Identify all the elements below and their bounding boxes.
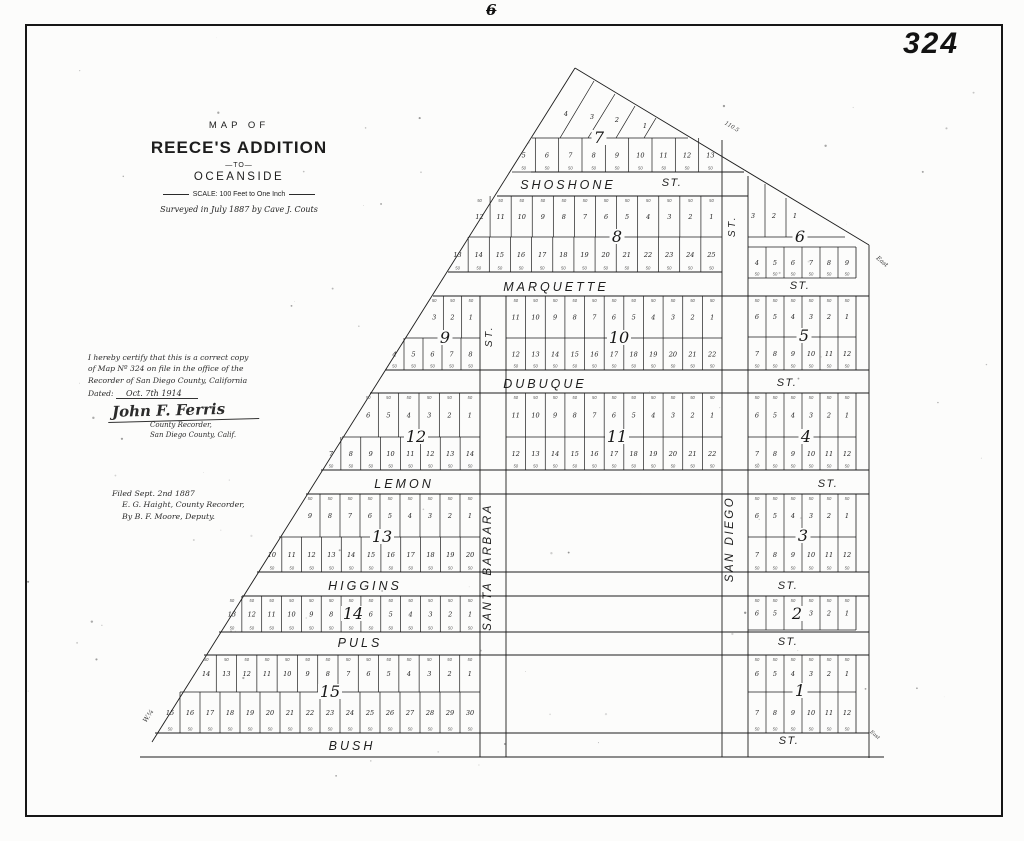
lot-number: 8	[329, 611, 333, 619]
lot-number: 8	[827, 259, 831, 267]
lot-number: 3	[751, 212, 755, 220]
lot-number: 19	[246, 709, 254, 717]
lot-number: 11	[267, 611, 275, 619]
lot-dimension: 50	[755, 298, 760, 303]
paper-speck	[981, 458, 982, 459]
scale-note: SCALE: 100 Feet to One Inch	[138, 191, 340, 198]
lot-dimension: 50	[624, 266, 629, 271]
lot-number: 4	[407, 512, 412, 520]
paper-speck	[193, 539, 195, 541]
paper-speck	[504, 743, 506, 745]
lot-number: 11	[825, 350, 833, 358]
lot-number: 8	[573, 412, 577, 420]
lot-dimension: 50	[809, 464, 814, 469]
lot-number: 5	[522, 152, 526, 160]
lot-number: 14	[347, 551, 355, 559]
street-label-st: ST.	[779, 735, 800, 747]
lot-number: 7	[568, 152, 573, 160]
lot-number: 16	[590, 351, 598, 359]
lot-number: 1	[845, 610, 849, 618]
lot-dimension: 50	[791, 464, 796, 469]
lot-dimension: 50	[631, 364, 636, 369]
lot-number: 18	[226, 709, 234, 717]
lot-dimension: 50	[809, 566, 814, 571]
paper-speck	[853, 107, 854, 108]
lot-number: 21	[687, 450, 696, 458]
lot-dimension: 50	[289, 598, 294, 603]
lot-number: 18	[629, 351, 637, 359]
lot-number: 4	[790, 512, 795, 520]
paper-speck	[525, 671, 526, 672]
lot-number: 10	[807, 551, 815, 559]
lot-dimension: 50	[603, 266, 608, 271]
lot-number: 13	[222, 670, 230, 678]
paper-speck	[479, 650, 481, 652]
lot-dimension: 50	[553, 364, 558, 369]
lot-dimension: 50	[308, 496, 313, 501]
block-number-7: 7	[594, 128, 605, 147]
lot-number: 13	[453, 251, 461, 259]
lot-number: 10	[807, 709, 815, 717]
lot-number: 7	[449, 351, 454, 359]
street-label-st: ST.	[778, 580, 799, 592]
street-label-st-: ST.	[484, 325, 495, 347]
lot-number: 12	[426, 450, 434, 458]
lot-number: 10	[518, 213, 526, 221]
lot-number: 8	[349, 450, 353, 458]
lot-dimension: 50	[498, 266, 503, 271]
lot-number: 5	[388, 512, 392, 520]
paper-speck	[640, 493, 641, 494]
lot-dimension: 50	[366, 657, 371, 662]
lot-number: 9	[553, 314, 557, 322]
paper-speck	[672, 355, 673, 356]
lot-number: 1	[710, 412, 714, 420]
paper-speck	[358, 326, 359, 327]
lot-dimension: 50	[326, 657, 331, 662]
lot-number: 2	[447, 512, 452, 520]
lot-dimension: 50	[572, 464, 577, 469]
block-number-14: 14	[343, 604, 363, 623]
paper-speck	[79, 383, 80, 384]
lot-number: 7	[592, 314, 597, 322]
lot-dimension: 50	[791, 598, 796, 603]
lot-dimension: 50	[773, 395, 778, 400]
lot-number: 13	[531, 450, 539, 458]
lot-number: 9	[306, 670, 310, 678]
lot-dimension: 50	[208, 727, 213, 732]
lot-number: 22	[305, 709, 314, 717]
lot-number: 21	[285, 709, 294, 717]
lot-dimension: 50	[305, 657, 310, 662]
lot-number: 1	[469, 314, 473, 322]
paper-speck	[797, 650, 798, 651]
lot-number: 6	[604, 213, 608, 221]
paper-speck	[381, 590, 383, 592]
lot-number: 1	[709, 213, 713, 221]
paper-speck	[220, 530, 221, 531]
lot-dimension: 50	[709, 198, 714, 203]
paper-speck	[798, 378, 800, 380]
lot-dimension: 50	[349, 566, 354, 571]
lot-number: 3	[590, 113, 594, 121]
annotation: W.¼	[141, 708, 155, 724]
street-label-shoshone: SHOSHONE	[520, 178, 616, 192]
lot-dimension: 50	[690, 298, 695, 303]
lot-number: 12	[843, 709, 851, 717]
lot-dimension: 50	[553, 298, 558, 303]
lot-dimension: 50	[468, 496, 473, 501]
paper-speck	[235, 631, 236, 632]
lot-dimension: 50	[513, 464, 518, 469]
lot-dimension: 50	[513, 395, 518, 400]
lot-number: 8	[773, 709, 777, 717]
lot-number: 3	[809, 670, 813, 678]
lot-dimension: 50	[468, 626, 473, 631]
lot-dimension: 50	[827, 272, 832, 277]
lot-number: 14	[551, 351, 559, 359]
plat-map-sheet: 5678910111213505050505050505050432171211…	[0, 0, 1024, 841]
lot-dimension: 50	[827, 298, 832, 303]
lot-dimension: 50	[671, 298, 676, 303]
lot-dimension: 50	[568, 166, 573, 171]
lot-number: 24	[685, 251, 694, 259]
paper-speck	[423, 508, 425, 510]
lot-number: 10	[386, 450, 394, 458]
lot-dimension: 50	[230, 626, 235, 631]
lot-number: 26	[385, 709, 394, 717]
lot-dimension: 50	[809, 657, 814, 662]
filed-line: Filed Sept. 2nd 1887	[112, 488, 245, 499]
lot-dimension: 50	[845, 566, 850, 571]
lot-dimension: 50	[408, 496, 413, 501]
lot-dimension: 50	[449, 364, 454, 369]
lot-dimension: 50	[651, 464, 656, 469]
paper-speck	[649, 391, 650, 392]
lot-number: 10	[268, 551, 276, 559]
lot-number: 6	[366, 412, 370, 420]
lot-dimension: 50	[230, 598, 235, 603]
lot-number: 23	[664, 251, 673, 259]
lot-dimension: 50	[773, 657, 778, 662]
lot-dimension: 50	[773, 364, 778, 369]
lot-number: 6	[755, 610, 759, 618]
lot-dimension: 50	[809, 727, 814, 732]
block-number-4: 4	[800, 427, 811, 446]
lot-dimension: 50	[428, 496, 433, 501]
lot-dimension: 50	[690, 364, 695, 369]
lot-number: 1	[845, 313, 849, 321]
lot-number: 11	[512, 412, 520, 420]
lot-dimension: 50	[791, 272, 796, 277]
lot-dimension: 50	[592, 395, 597, 400]
street-label-st: ST.	[818, 478, 839, 490]
lot-dimension: 50	[773, 566, 778, 571]
lot-dimension: 50	[329, 598, 334, 603]
paper-speck	[230, 630, 231, 631]
lot-number: 25	[706, 251, 715, 259]
lot-number: 19	[649, 450, 657, 458]
paper-speck	[549, 714, 551, 716]
lot-dimension: 50	[428, 626, 433, 631]
block-number-3: 3	[798, 526, 808, 545]
lot-dimension: 50	[755, 566, 760, 571]
lot-dimension: 50	[773, 496, 778, 501]
lot-dimension: 50	[204, 657, 209, 662]
lot-dimension: 50	[688, 266, 693, 271]
certification-line: of Map Nº 324 on file in the office of t…	[88, 363, 338, 374]
lot-number: 6	[791, 259, 795, 267]
lot-number: 7	[583, 213, 588, 221]
to-label: —TO—	[138, 162, 340, 169]
lot-number: 8	[328, 512, 332, 520]
lot-dimension: 50	[612, 464, 617, 469]
lot-number: 19	[446, 551, 454, 559]
lot-number: 11	[288, 551, 296, 559]
lot-dimension: 50	[329, 626, 334, 631]
street-label-marquette: MARQUETTE	[503, 280, 608, 294]
lot-number: 2	[447, 611, 452, 619]
lot-dimension: 50	[329, 464, 334, 469]
paper-speck	[203, 472, 204, 473]
lot-number: 1	[643, 122, 647, 130]
lot-dimension: 50	[513, 298, 518, 303]
lot-dimension: 50	[467, 395, 472, 400]
lot-dimension: 50	[710, 364, 715, 369]
paper-speck	[478, 765, 479, 766]
lot-number: 4	[563, 110, 568, 118]
lot-number: 5	[773, 610, 777, 618]
lot-number: 22	[643, 251, 652, 259]
lot-dimension: 50	[755, 727, 760, 732]
lot-dimension: 50	[545, 166, 550, 171]
lot-dimension: 50	[685, 166, 690, 171]
map-title: REECE'S ADDITION	[138, 138, 340, 158]
paper-speck	[217, 112, 219, 114]
lot-number: 1	[845, 670, 849, 678]
paper-speck	[306, 618, 307, 619]
lot-dimension: 50	[309, 566, 314, 571]
lot-number: 10	[807, 350, 815, 358]
lot-number: 1	[710, 314, 714, 322]
lot-number: 15	[571, 450, 579, 458]
lot-number: 12	[843, 551, 851, 559]
lot-dimension: 50	[519, 198, 524, 203]
lot-dimension: 50	[791, 727, 796, 732]
dated-value: Oct. 7th 1914	[116, 389, 198, 399]
lot-dimension: 50	[845, 298, 850, 303]
lot-dimension: 50	[827, 496, 832, 501]
signature-title: County Recorder,	[150, 421, 338, 430]
lot-number: 4	[650, 412, 655, 420]
lot-number: 10	[531, 314, 539, 322]
lot-dimension: 50	[755, 657, 760, 662]
lot-number: 3	[428, 611, 432, 619]
lot-number: 5	[632, 314, 636, 322]
lot-number: 5	[773, 313, 777, 321]
lot-number: 6	[369, 611, 373, 619]
lot-dimension: 50	[448, 496, 453, 501]
lot-dimension: 50	[476, 266, 481, 271]
lot-dimension: 50	[845, 496, 850, 501]
lot-number: 9	[791, 450, 795, 458]
lot-number: 3	[432, 314, 436, 322]
lot-number: 7	[348, 512, 353, 520]
lot-number: 12	[243, 670, 251, 678]
paper-speck	[759, 519, 760, 520]
lot-dimension: 50	[533, 298, 538, 303]
lot-dimension: 50	[773, 298, 778, 303]
paper-speck	[419, 117, 421, 119]
lot-number: 5	[632, 412, 636, 420]
street-label-st: ST.	[777, 377, 798, 389]
lot-number: 3	[809, 610, 813, 618]
recorder-signature: John F. Ferris	[108, 399, 260, 423]
lot-number: 8	[773, 450, 777, 458]
lot-number: 12	[843, 450, 851, 458]
lot-number: 6	[612, 412, 616, 420]
lot-dimension: 50	[268, 727, 273, 732]
lot-number: 4	[645, 213, 650, 221]
lot-dimension: 50	[667, 266, 672, 271]
lot-dimension: 50	[533, 364, 538, 369]
lot-dimension: 50	[809, 298, 814, 303]
lot-dimension: 50	[671, 464, 676, 469]
lot-number: 21	[687, 351, 696, 359]
lot-dimension: 50	[224, 657, 229, 662]
scale-rule-right	[289, 194, 315, 195]
surveyor-note: Surveyed in July 1887 by Cave J. Couts	[138, 205, 340, 214]
lot-dimension: 50	[329, 566, 334, 571]
lot-dimension: 50	[368, 727, 373, 732]
handwritten-mark: 6	[486, 1, 496, 19]
lot-dimension: 50	[809, 598, 814, 603]
lot-number: 9	[553, 412, 557, 420]
paper-speck	[865, 688, 867, 690]
lot-dimension: 50	[612, 298, 617, 303]
paper-speck	[242, 677, 244, 679]
lot-number: 8	[592, 152, 596, 160]
lot-dimension: 50	[533, 464, 538, 469]
lot-number: 15	[571, 351, 579, 359]
paper-speck	[76, 642, 78, 644]
lot-dimension: 50	[408, 566, 413, 571]
lot-dimension: 50	[809, 496, 814, 501]
lot-number: 2	[447, 670, 452, 678]
lot-dimension: 50	[349, 598, 354, 603]
lot-dimension: 50	[615, 166, 620, 171]
lot-number: 1	[468, 670, 472, 678]
lot-dimension: 50	[348, 496, 353, 501]
lot-dimension: 50	[755, 496, 760, 501]
lot-dimension: 50	[553, 464, 558, 469]
lot-dimension: 50	[430, 364, 435, 369]
lot-dimension: 50	[289, 626, 294, 631]
lot-number: 3	[809, 412, 813, 420]
paper-speck	[824, 145, 826, 147]
lot-number: 15	[166, 709, 174, 717]
paper-speck	[380, 203, 382, 205]
street-label-st-: ST.	[727, 215, 738, 237]
filed-line: E. G. Haight, County Recorder,	[122, 499, 245, 510]
lot-number: 14	[202, 670, 210, 678]
lot-number: 13	[327, 551, 335, 559]
lot-dimension: 50	[604, 198, 609, 203]
lot-number: 9	[369, 450, 373, 458]
lot-dimension: 50	[773, 464, 778, 469]
lot-dimension: 50	[845, 395, 850, 400]
lot-dimension: 50	[428, 727, 433, 732]
title-block: MAP OF REECE'S ADDITION —TO— OCEANSIDE S…	[138, 120, 340, 214]
lot-number: 11	[512, 314, 520, 322]
paper-speck	[568, 552, 570, 554]
lot-number: 3	[809, 313, 813, 321]
lot-dimension: 50	[448, 566, 453, 571]
lot-number: 6	[368, 512, 372, 520]
lot-number: 3	[667, 213, 671, 221]
filing-note: Filed Sept. 2nd 1887 E. G. Haight, Count…	[112, 488, 245, 522]
lot-dimension: 50	[791, 395, 796, 400]
lot-dimension: 50	[348, 727, 353, 732]
lot-dimension: 50	[388, 566, 393, 571]
lot-number: 20	[668, 351, 677, 359]
lot-number: 30	[466, 709, 474, 717]
lot-number: 5	[386, 412, 390, 420]
lot-number: 22	[707, 450, 716, 458]
block-number-10: 10	[609, 328, 629, 347]
lot-number: 17	[538, 251, 547, 259]
street-label-dubuque: DUBUQUE	[503, 377, 587, 391]
lot-dimension: 50	[477, 198, 482, 203]
lot-dimension: 50	[309, 626, 314, 631]
street-label-lemon: LEMON	[374, 477, 433, 491]
lot-dimension: 50	[406, 395, 411, 400]
lot-dimension: 50	[638, 166, 643, 171]
lot-dimension: 50	[348, 464, 353, 469]
lot-number: 3	[427, 670, 431, 678]
paper-speck	[363, 205, 364, 206]
lot-dimension: 50	[690, 464, 695, 469]
lot-number: 2	[689, 314, 694, 322]
block-number-5: 5	[799, 326, 809, 345]
paper-speck	[79, 70, 80, 71]
paper-speck	[365, 127, 367, 129]
lot-dimension: 50	[448, 464, 453, 469]
paper-speck	[216, 37, 217, 38]
lot-dimension: 50	[755, 598, 760, 603]
lot-number: 1	[468, 611, 472, 619]
paper-speck	[339, 549, 341, 551]
lot-number: 2	[449, 314, 454, 322]
lot-number: 12	[248, 611, 256, 619]
lot-number: 11	[406, 450, 414, 458]
lot-dimension: 50	[468, 364, 473, 369]
lot-number: 9	[791, 709, 795, 717]
lot-dimension: 50	[455, 266, 460, 271]
lot-number: 7	[755, 350, 760, 358]
lot-dimension: 50	[572, 395, 577, 400]
lot-number: 6	[755, 512, 759, 520]
paper-speck	[986, 364, 987, 365]
paper-speck	[229, 480, 230, 481]
lot-dimension: 50	[845, 364, 850, 369]
lot-dimension: 50	[289, 566, 294, 571]
lot-number: 2	[446, 412, 451, 420]
block-number-2: 2	[791, 604, 802, 623]
lot-dimension: 50	[533, 395, 538, 400]
lot-dimension: 50	[448, 598, 453, 603]
lot-number: 2	[689, 412, 694, 420]
